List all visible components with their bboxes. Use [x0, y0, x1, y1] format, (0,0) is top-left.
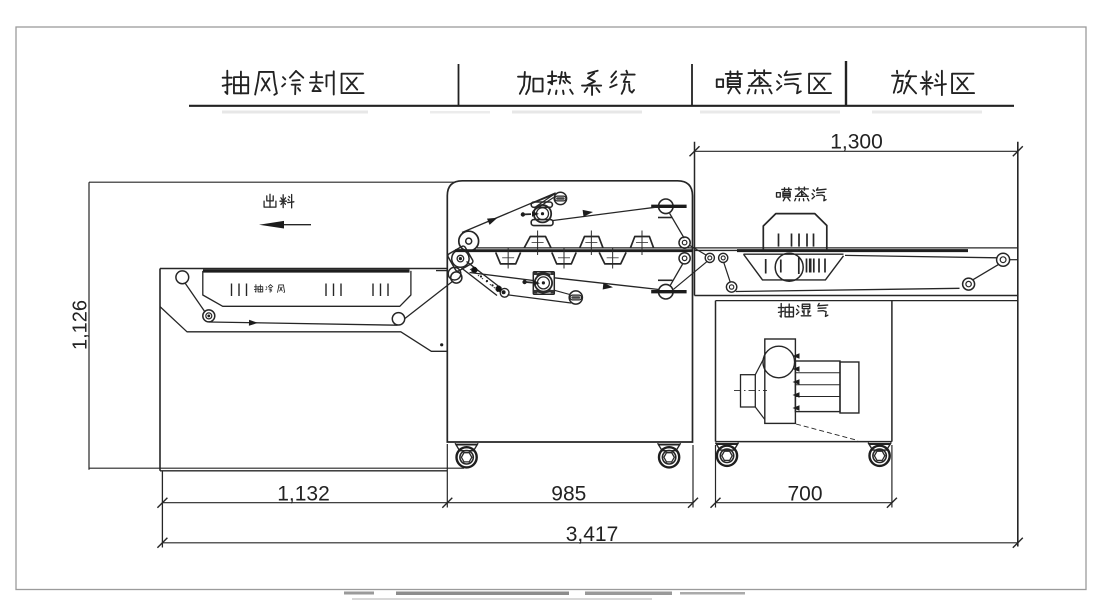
svg-text:1,300: 1,300 [830, 131, 883, 154]
svg-text:985: 985 [551, 482, 586, 505]
svg-text:1,126: 1,126 [70, 300, 92, 350]
svg-text:700: 700 [787, 482, 822, 505]
svg-text:1,132: 1,132 [277, 482, 330, 505]
svg-text:3,417: 3,417 [566, 523, 619, 546]
